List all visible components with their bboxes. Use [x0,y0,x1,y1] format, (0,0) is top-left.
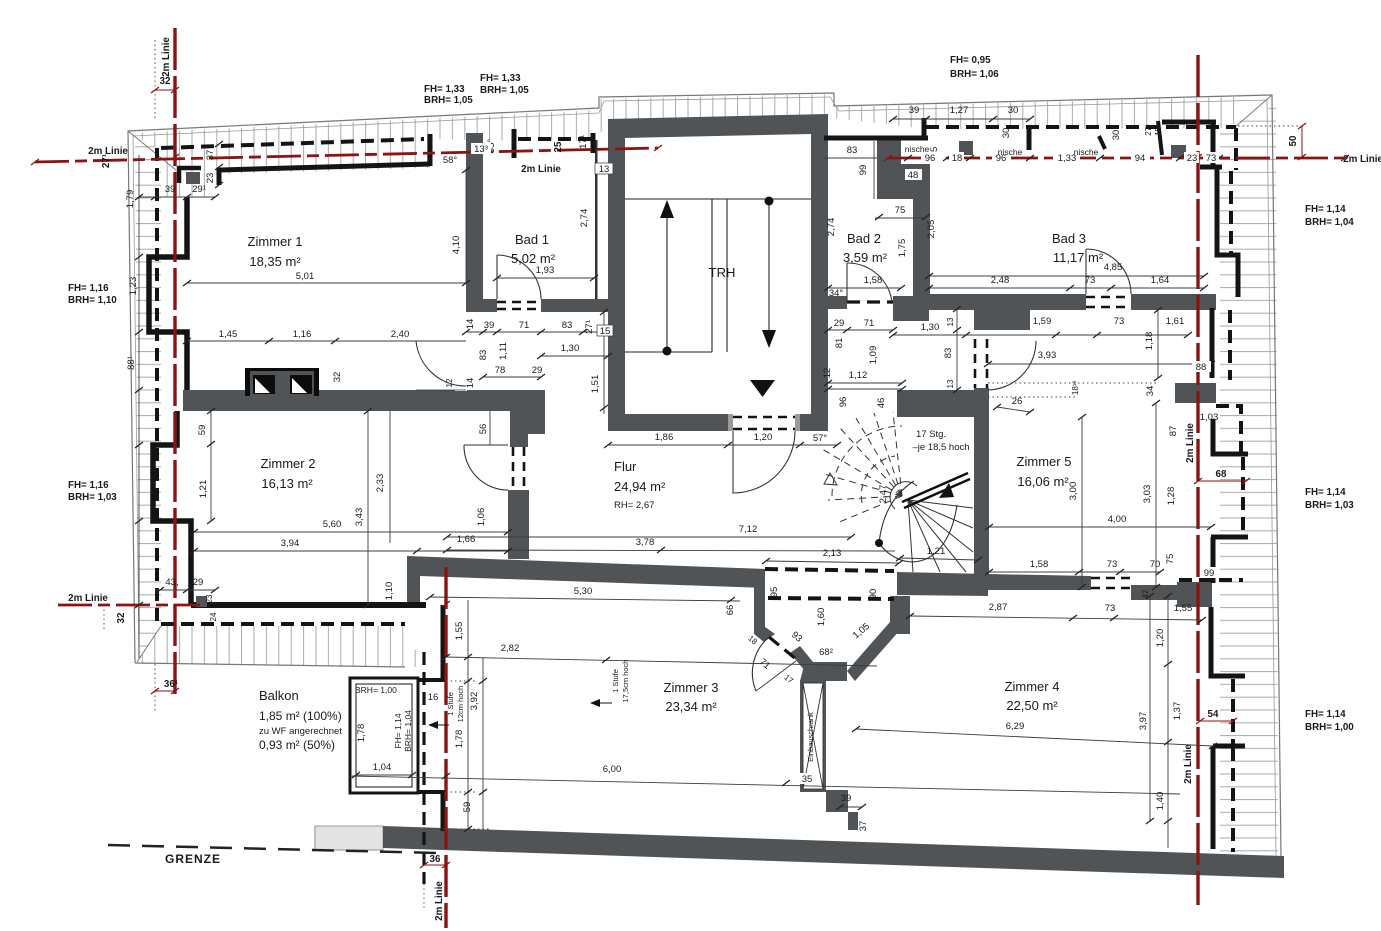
svg-text:96: 96 [925,153,936,164]
svg-text:FH= 0,95: FH= 0,95 [950,55,991,66]
svg-text:0,93 m² (50%): 0,93 m² (50%) [259,738,335,752]
svg-text:18: 18 [952,153,963,164]
svg-text:Zimmer 5: Zimmer 5 [1017,454,1072,469]
svg-text:34°: 34° [829,288,844,299]
svg-text:88¹: 88¹ [126,356,137,370]
svg-text:11,17 m²: 11,17 m² [1053,250,1104,265]
svg-text:1,37: 1,37 [1172,702,1183,721]
svg-text:54: 54 [1208,709,1219,720]
svg-text:nische: nische [998,147,1023,157]
svg-text:1,51: 1,51 [590,375,601,394]
svg-text:FH= 1,14: FH= 1,14 [1305,487,1346,498]
svg-text:Einbauschrank: Einbauschrank [806,712,815,762]
svg-text:16: 16 [428,692,439,703]
svg-text:1,58: 1,58 [1030,559,1049,570]
svg-text:81: 81 [834,338,845,349]
svg-text:12cm hoch: 12cm hoch [456,686,465,723]
svg-text:1,04: 1,04 [373,762,392,773]
svg-text:23: 23 [1187,153,1198,164]
svg-text:BRH= 1,03: BRH= 1,03 [68,492,117,503]
svg-text:83: 83 [847,145,858,156]
svg-text:1,55: 1,55 [454,622,465,641]
svg-text:73: 73 [1114,316,1125,327]
svg-text:12: 12 [822,368,833,379]
svg-text:50: 50 [1288,135,1299,146]
svg-text:1,16: 1,16 [293,329,312,340]
svg-text:BRH= 1,06: BRH= 1,06 [950,69,999,80]
svg-text:BRH= 1,03: BRH= 1,03 [1305,500,1354,511]
svg-text:2,74: 2,74 [579,209,590,228]
svg-text:42: 42 [1141,589,1150,598]
svg-text:36: 36 [430,854,441,865]
svg-text:BRH= 1,04: BRH= 1,04 [403,710,413,752]
svg-text:56: 56 [478,424,489,435]
svg-text:FH= 1,14: FH= 1,14 [1305,709,1346,720]
svg-text:13³: 13³ [474,144,488,155]
svg-text:78: 78 [495,365,506,376]
svg-text:BRH= 1,05: BRH= 1,05 [480,85,529,96]
svg-text:99: 99 [1204,568,1215,579]
svg-text:13: 13 [946,317,955,326]
svg-text:94: 94 [1135,153,1146,164]
svg-text:3,78: 3,78 [636,537,655,548]
svg-text:23,34 m²: 23,34 m² [665,699,717,714]
svg-text:16,06 m²: 16,06 m² [1017,474,1069,489]
svg-text:24,94 m²: 24,94 m² [614,479,666,494]
svg-text:75: 75 [895,205,906,216]
svg-text:73: 73 [1206,153,1217,164]
svg-text:1,11: 1,11 [498,342,509,360]
svg-text:zu WF angerechnet: zu WF angerechnet [259,726,342,737]
svg-text:1,30: 1,30 [921,322,940,333]
svg-text:Zimmer 3: Zimmer 3 [664,680,719,695]
svg-text:3,43: 3,43 [354,508,365,527]
svg-text:3,00: 3,00 [1068,482,1079,501]
svg-text:BRH= 1,00: BRH= 1,00 [1305,722,1354,733]
svg-text:7,12: 7,12 [739,524,758,535]
svg-text:39: 39 [909,105,920,116]
svg-text:BRH= 1,10: BRH= 1,10 [68,295,117,306]
svg-text:Bad 3: Bad 3 [1052,231,1086,246]
svg-text:17 Stg.: 17 Stg. [916,429,946,440]
svg-text:4,10: 4,10 [451,236,462,255]
svg-text:FH= 1,14: FH= 1,14 [393,713,403,748]
svg-text:26: 26 [1012,396,1023,407]
svg-text:22,50 m²: 22,50 m² [1006,698,1058,713]
svg-text:2m Linie: 2m Linie [1343,154,1381,165]
svg-text:FH= 1,14: FH= 1,14 [1305,204,1346,215]
svg-text:48: 48 [908,170,919,181]
svg-text:3,97: 3,97 [1138,712,1149,731]
svg-text:1,03: 1,03 [1200,412,1219,423]
svg-text:46: 46 [876,398,887,409]
svg-text:Zimmer 2: Zimmer 2 [261,456,316,471]
svg-text:1,64: 1,64 [1151,275,1170,286]
svg-text:2,40: 2,40 [391,329,410,340]
svg-text:23: 23 [205,594,214,603]
svg-text:83: 83 [943,348,954,359]
svg-text:27¹: 27¹ [101,154,112,168]
svg-text:99: 99 [858,165,869,176]
svg-text:39: 39 [165,184,176,195]
svg-text:16,13 m²: 16,13 m² [261,476,313,491]
svg-text:1,86: 1,86 [655,432,674,443]
svg-text:Zimmer 1: Zimmer 1 [248,234,303,249]
svg-text:87: 87 [1168,426,1179,437]
svg-text:1,06: 1,06 [476,508,487,527]
svg-text:1,21: 1,21 [198,480,209,499]
svg-text:5,60: 5,60 [323,519,342,530]
svg-text:1,12: 1,12 [849,370,868,381]
svg-text:2m Linie: 2m Linie [434,881,445,921]
svg-text:95: 95 [769,587,780,598]
svg-text:32: 32 [332,372,343,383]
svg-text:1,93: 1,93 [536,265,555,276]
svg-text:1,09: 1,09 [868,346,879,365]
svg-text:29: 29 [193,577,204,588]
svg-text:23: 23 [205,173,216,184]
svg-text:12: 12 [445,378,454,387]
svg-text:1,59: 1,59 [1033,316,1052,327]
svg-text:3,59 m²: 3,59 m² [843,250,888,265]
svg-text:15¹: 15¹ [1154,124,1163,136]
svg-text:17,5cm hoch: 17,5cm hoch [621,660,630,703]
svg-text:1,30: 1,30 [561,343,580,354]
svg-text:83: 83 [562,320,573,331]
svg-text:2,74: 2,74 [826,218,837,237]
svg-text:2,33: 2,33 [375,474,386,493]
svg-text:2,13: 2,13 [823,548,842,559]
svg-text:1 Stufe: 1 Stufe [611,669,620,693]
svg-text:2,48: 2,48 [991,275,1010,286]
svg-text:GRENZE: GRENZE [165,852,221,866]
svg-text:14: 14 [465,378,476,389]
svg-text:2,05: 2,05 [926,220,937,239]
svg-text:58°: 58° [443,155,458,166]
svg-text:59: 59 [197,425,208,436]
svg-text:1,66: 1,66 [457,534,476,545]
svg-text:1,27: 1,27 [950,105,969,116]
svg-text:39: 39 [841,793,852,804]
svg-text:73: 73 [1105,603,1116,614]
svg-text:1,61: 1,61 [1166,316,1185,327]
svg-text:BRH= 1,05: BRH= 1,05 [424,95,473,106]
svg-text:59: 59 [462,802,473,813]
svg-text:BRH= 1,04: BRH= 1,04 [1305,217,1354,228]
svg-text:5,02 m²: 5,02 m² [511,251,556,266]
svg-text:17¹: 17¹ [578,135,589,149]
svg-text:1,58: 1,58 [864,275,883,286]
svg-text:4,00: 4,00 [1108,514,1127,525]
svg-text:6,00: 6,00 [603,764,622,775]
svg-text:6,29: 6,29 [1006,721,1025,732]
svg-text:Bad 1: Bad 1 [515,232,549,247]
svg-text:37: 37 [205,150,216,161]
svg-text:88: 88 [1196,362,1207,373]
svg-text:13: 13 [599,164,610,175]
svg-text:1,10: 1,10 [384,582,395,601]
svg-text:2m Linie: 2m Linie [68,593,108,604]
svg-text:43,: 43, [165,577,178,588]
svg-text:36¹: 36¹ [164,679,178,690]
svg-text:57°: 57° [813,433,828,444]
svg-text:27¹: 27¹ [1144,124,1153,136]
svg-text:–je 18,5 hoch: –je 18,5 hoch [912,442,969,453]
svg-text:BRH= 1,00: BRH= 1,00 [355,685,397,695]
svg-text:15: 15 [600,326,611,337]
svg-text:83: 83 [478,350,489,361]
svg-text:1,23: 1,23 [128,277,139,296]
svg-text:35: 35 [802,774,813,785]
svg-text:1,78: 1,78 [454,730,465,749]
svg-text:1,21: 1,21 [927,546,946,557]
svg-text:FH= 1,33: FH= 1,33 [424,84,465,95]
svg-text:Balkon: Balkon [259,688,299,703]
svg-text:32: 32 [160,76,171,87]
svg-text:2m Linie: 2m Linie [161,37,172,77]
svg-text:FH= 1,33: FH= 1,33 [480,73,521,84]
svg-text:2m Linie: 2m Linie [1185,423,1196,463]
svg-text:FH= 1,16: FH= 1,16 [68,283,109,294]
svg-text:2,82: 2,82 [501,643,520,654]
svg-text:RH= 2,67: RH= 2,67 [614,500,654,511]
svg-text:3,93: 3,93 [1038,350,1057,361]
svg-text:nische: nische [1074,147,1099,157]
svg-text:39: 39 [484,320,495,331]
svg-text:71: 71 [864,318,875,329]
svg-text:68²: 68² [819,647,833,658]
svg-text:70: 70 [1150,559,1161,570]
svg-text:34: 34 [1145,386,1156,397]
svg-text:2,87: 2,87 [989,602,1008,613]
svg-text:37: 37 [858,821,869,832]
svg-text:1,85 m² (100%): 1,85 m² (100%) [259,709,342,723]
svg-text:68: 68 [1216,469,1227,480]
svg-text:30: 30 [1001,128,1012,139]
svg-text:75: 75 [1165,554,1176,565]
svg-text:2m Linie: 2m Linie [1183,744,1194,784]
svg-text:Bad 2: Bad 2 [847,231,881,246]
svg-text:1,55: 1,55 [1174,603,1193,614]
svg-text:1,78: 1,78 [356,724,367,743]
svg-text:TRH: TRH [709,265,736,280]
svg-text:1,75: 1,75 [897,239,908,258]
svg-text:13: 13 [946,379,955,388]
svg-text:5,30: 5,30 [574,586,593,597]
svg-text:27¹: 27¹ [584,320,595,334]
svg-text:1,20: 1,20 [1155,629,1166,648]
svg-text:32: 32 [116,612,127,623]
svg-text:1,60: 1,60 [816,608,827,627]
svg-text:18,35 m²: 18,35 m² [249,254,301,269]
svg-text:Flur: Flur [614,459,637,474]
svg-text:1,45: 1,45 [219,329,238,340]
svg-text:1,20: 1,20 [754,432,773,443]
svg-text:2,47: 2,47 [878,485,889,504]
svg-text:71: 71 [519,320,530,331]
svg-text:30: 30 [1008,105,1019,116]
svg-text:3,03: 3,03 [1142,485,1153,504]
svg-text:73: 73 [1107,559,1118,570]
svg-text:3,92: 3,92 [469,692,480,711]
svg-text:5,01: 5,01 [296,271,315,282]
svg-text:96: 96 [838,397,849,408]
svg-text:FH= 1,16: FH= 1,16 [68,480,109,491]
svg-text:Zimmer 4: Zimmer 4 [1005,679,1060,694]
svg-text:29: 29 [834,318,845,329]
svg-text:30: 30 [1111,130,1122,141]
svg-text:1,40: 1,40 [1155,792,1166,811]
svg-text:18¹³: 18¹³ [1071,381,1080,396]
svg-text:14: 14 [465,319,476,330]
svg-text:1 Stufe: 1 Stufe [446,692,455,716]
svg-text:1,18: 1,18 [1144,332,1155,351]
svg-text:29: 29 [532,365,543,376]
svg-text:2m Linie: 2m Linie [521,164,561,175]
svg-text:3,94: 3,94 [281,538,300,549]
svg-text:1,79: 1,79 [125,190,136,209]
svg-text:66: 66 [725,605,736,616]
svg-text:4,85: 4,85 [1104,262,1123,273]
svg-text:29¹: 29¹ [192,184,206,195]
svg-text:24: 24 [209,612,218,621]
svg-text:nische: nische [905,144,930,154]
svg-text:25: 25 [553,141,564,152]
svg-text:1,28: 1,28 [1166,487,1177,506]
svg-text:73: 73 [1085,275,1096,286]
svg-text:90: 90 [868,589,879,600]
